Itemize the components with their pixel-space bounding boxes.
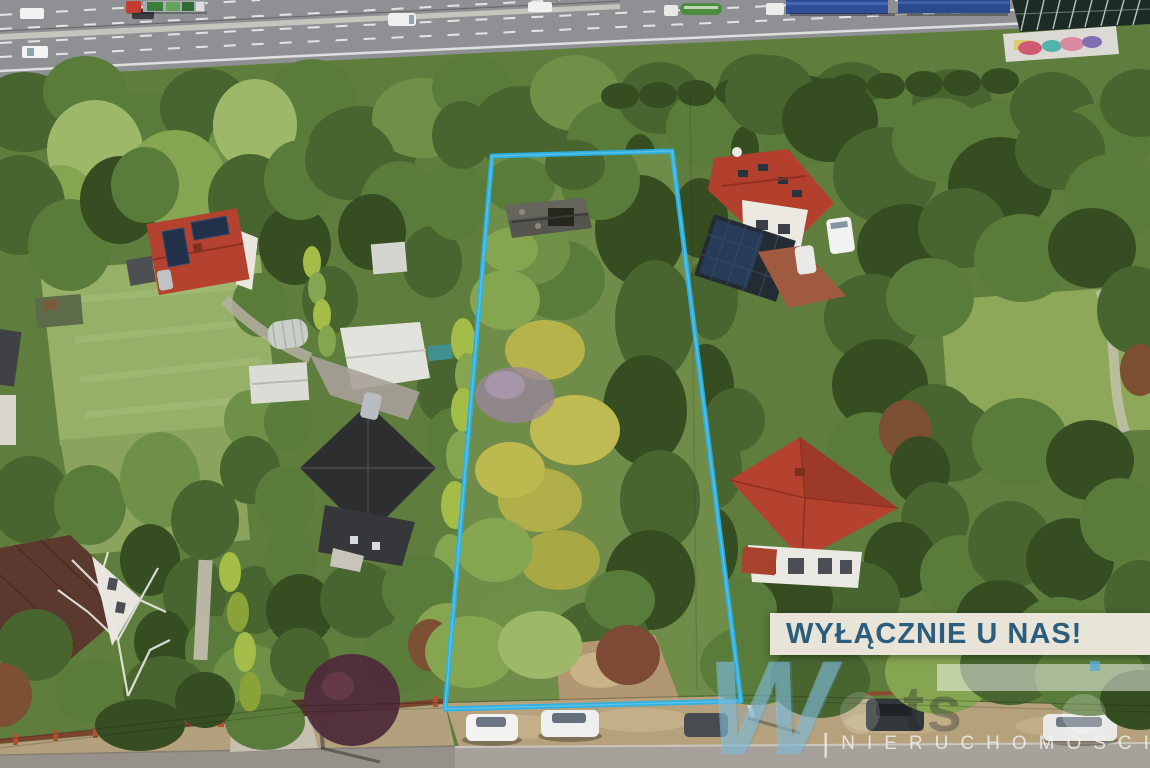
- parked-car: [684, 713, 728, 737]
- tanker-truck: [664, 5, 678, 16]
- exclusive-banner: WYŁĄCZNIE U NAS!: [770, 613, 1150, 655]
- exclusive-banner-label: WYŁĄCZNIE U NAS!: [786, 618, 1082, 651]
- purple-tree: [304, 654, 400, 746]
- balcony: [741, 547, 777, 576]
- aerial-listing-photo: W ts | NIERUCHOMOŚCI WYŁĄCZNIE U NAS!: [0, 0, 1150, 768]
- carport: [126, 256, 156, 286]
- red-truck: [126, 1, 141, 13]
- blue-road-train: [766, 3, 784, 15]
- pool-tarp: [427, 344, 452, 361]
